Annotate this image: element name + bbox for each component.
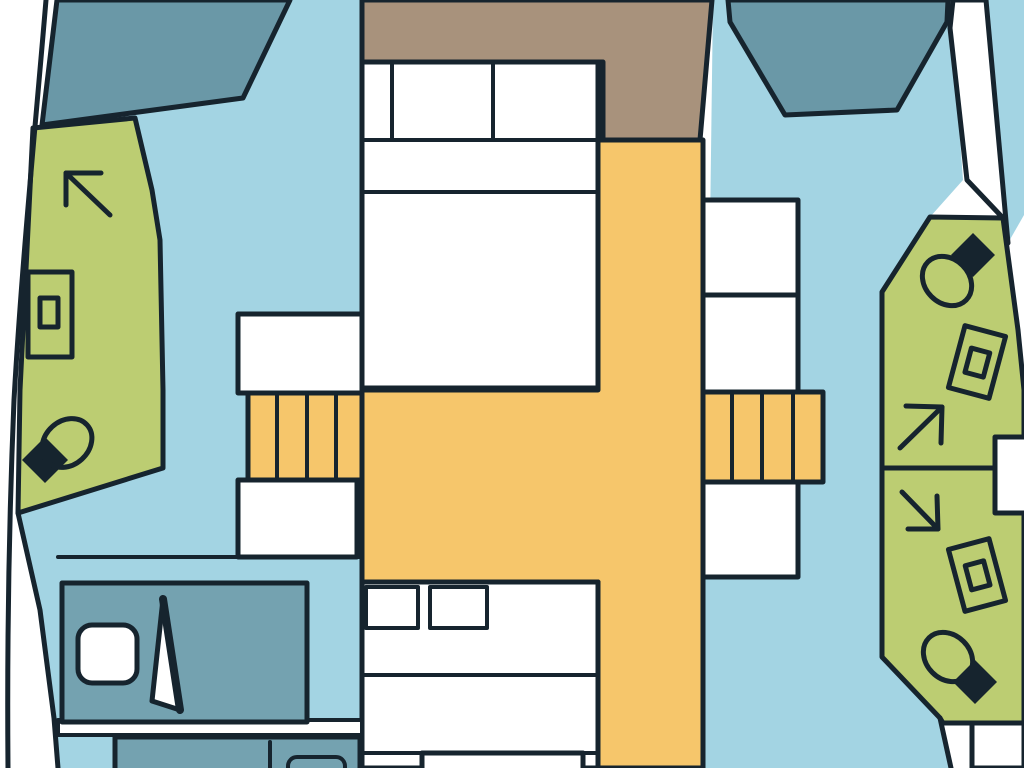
floorplan xyxy=(8,0,1024,768)
pillow xyxy=(430,587,487,628)
left-cabinet-lower xyxy=(238,480,357,557)
pillow xyxy=(366,587,418,628)
floorplan-stage xyxy=(0,0,1024,768)
right-staircase xyxy=(703,392,823,482)
bed-platform xyxy=(362,62,598,388)
right-cabinet-middle xyxy=(703,295,798,392)
left-galley-counter xyxy=(115,737,360,768)
left-staircase xyxy=(248,393,362,480)
floorplan-svg xyxy=(0,0,1024,768)
aft-cabin-bed xyxy=(362,582,598,768)
left-cabinet-upper xyxy=(238,314,362,393)
right-cabinet-lower xyxy=(703,482,798,577)
aft-right-locker xyxy=(972,723,1024,768)
bed-foot-step xyxy=(422,753,583,768)
berth-pillow xyxy=(78,625,137,683)
forward-cabin-bed xyxy=(362,62,598,388)
right-cabinet-upper xyxy=(703,200,798,295)
